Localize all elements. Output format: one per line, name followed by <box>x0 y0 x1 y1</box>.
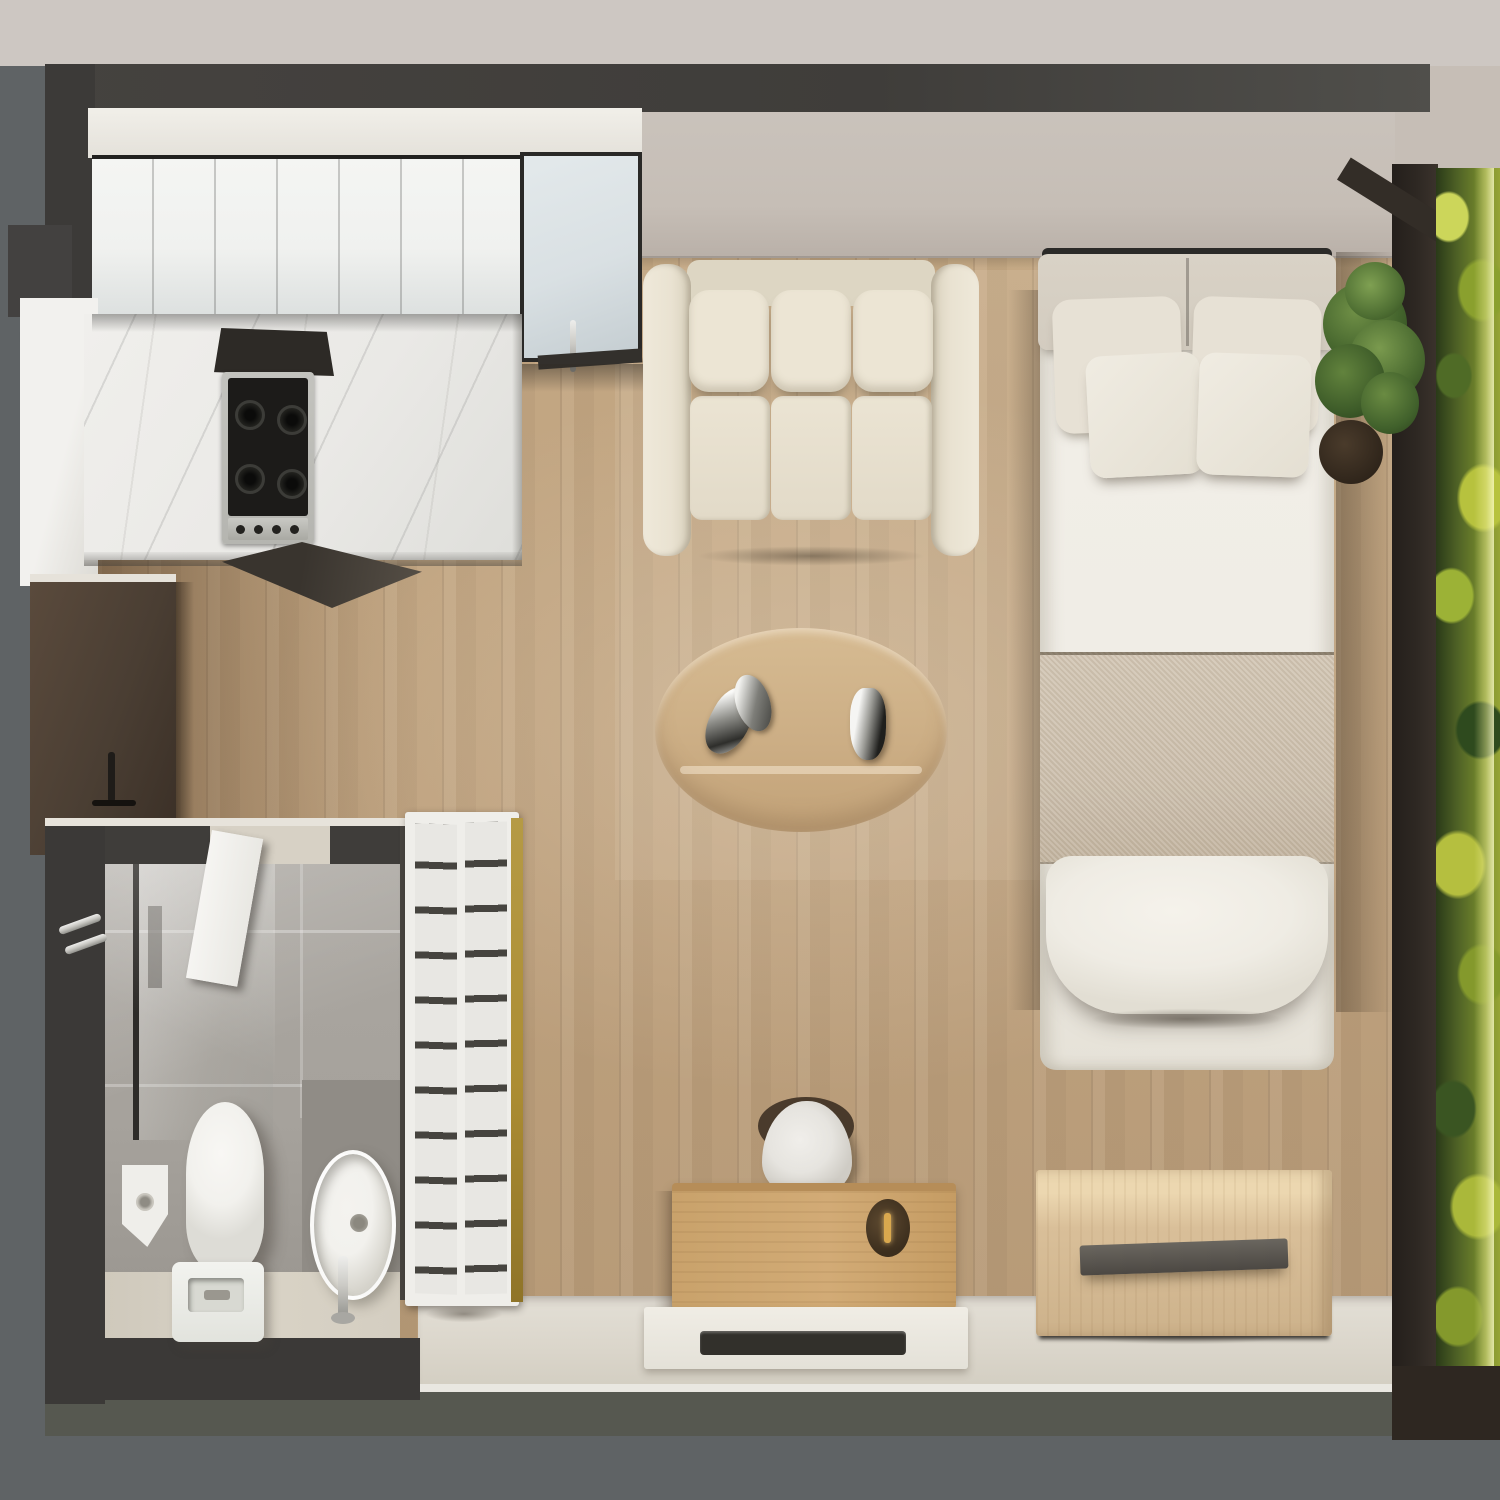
bathroom-wall-bottom <box>45 1338 420 1400</box>
nightstand <box>1032 1168 1336 1348</box>
kitchen-cabinet-top-strip <box>88 108 642 158</box>
plant-pot <box>1319 420 1383 484</box>
sofa-armrest-left <box>643 264 691 556</box>
shelving-column-left <box>415 823 457 1294</box>
shelving-side-edge <box>511 818 523 1302</box>
tall-cabinet <box>520 152 642 362</box>
plant-foliage <box>1345 262 1405 320</box>
headboard-seam <box>1186 258 1189 346</box>
desk-top <box>672 1183 956 1309</box>
cooktop-knob <box>272 525 281 534</box>
potted-plant <box>1305 262 1435 502</box>
sofa-seat-cushion <box>771 396 851 520</box>
gas-cooktop <box>222 372 314 544</box>
toilet-base-box <box>172 1262 264 1342</box>
burner <box>235 464 265 494</box>
burner <box>277 405 307 435</box>
burner <box>235 400 265 430</box>
table-top <box>655 628 947 832</box>
sofa-floor-shadow <box>649 542 973 570</box>
bed <box>1038 248 1336 1048</box>
coffee-table <box>640 618 970 868</box>
burner <box>277 469 307 499</box>
basin-drain <box>350 1214 368 1232</box>
pillow-small-left <box>1085 351 1205 479</box>
basin-faucet <box>338 1256 348 1320</box>
tall-cabinet-floor-shadow <box>522 364 644 392</box>
dark-cabinet-shadow <box>176 582 194 855</box>
toilet-drain-slot <box>204 1290 230 1300</box>
toilet-base-recess <box>188 1278 244 1312</box>
sofa-seat-cushion <box>852 396 932 520</box>
pillow-small-right <box>1196 352 1312 478</box>
kitchen-upper-cabinets <box>92 155 522 321</box>
counter-under-cabinet-shadow <box>92 314 522 332</box>
sofa-back-cushion <box>853 290 933 392</box>
sofa-back-cushion <box>771 290 851 392</box>
sofa <box>643 260 979 566</box>
washbasin <box>310 1150 396 1300</box>
floorplan-render <box>0 0 1500 1500</box>
tile-seam-v <box>300 858 303 1118</box>
bed-throw-blanket <box>1040 652 1334 864</box>
desk-lamp-brass <box>884 1213 891 1243</box>
moss-light-beam <box>1474 168 1494 1390</box>
plant-foliage <box>1361 372 1419 434</box>
top-backdrop-strip <box>0 0 1500 66</box>
entry-concrete-zone <box>615 100 1415 262</box>
cooktop-knob-strip <box>228 518 308 540</box>
window-sill-bottom <box>1392 1366 1500 1440</box>
top-wall <box>45 64 1430 112</box>
toilet <box>186 1102 264 1274</box>
range-hood-vent <box>214 328 334 376</box>
cooktop-knob <box>254 525 263 534</box>
dark-storage-cabinet <box>30 582 176 855</box>
sofa-armrest-right <box>931 264 979 556</box>
dark-cabinet-handle <box>108 752 115 802</box>
bathroom <box>45 818 420 1400</box>
decor-metal-vase <box>850 688 886 760</box>
shelving-column-right <box>465 822 507 1295</box>
paper-roll <box>136 1193 154 1211</box>
desk-area <box>640 1095 972 1377</box>
cooktop-knob <box>236 525 245 534</box>
wardrobe-shelving-unit <box>403 810 525 1326</box>
soundbar <box>700 1331 906 1355</box>
shelving-floor-shadow <box>409 1302 519 1326</box>
cooktop-knob <box>290 525 299 534</box>
table-shelf-line <box>680 766 922 774</box>
bed-end-shadow <box>1050 1004 1324 1034</box>
dark-cabinet-handle-bar <box>92 800 136 806</box>
basin-faucet-base <box>331 1312 355 1324</box>
sofa-seat-cushion <box>690 396 770 520</box>
counter-right-edge-shadow <box>512 314 522 560</box>
bed-foot-fold <box>1046 856 1328 1014</box>
bed-shadow-left <box>1008 290 1040 1010</box>
sofa-back-cushion <box>689 290 769 392</box>
